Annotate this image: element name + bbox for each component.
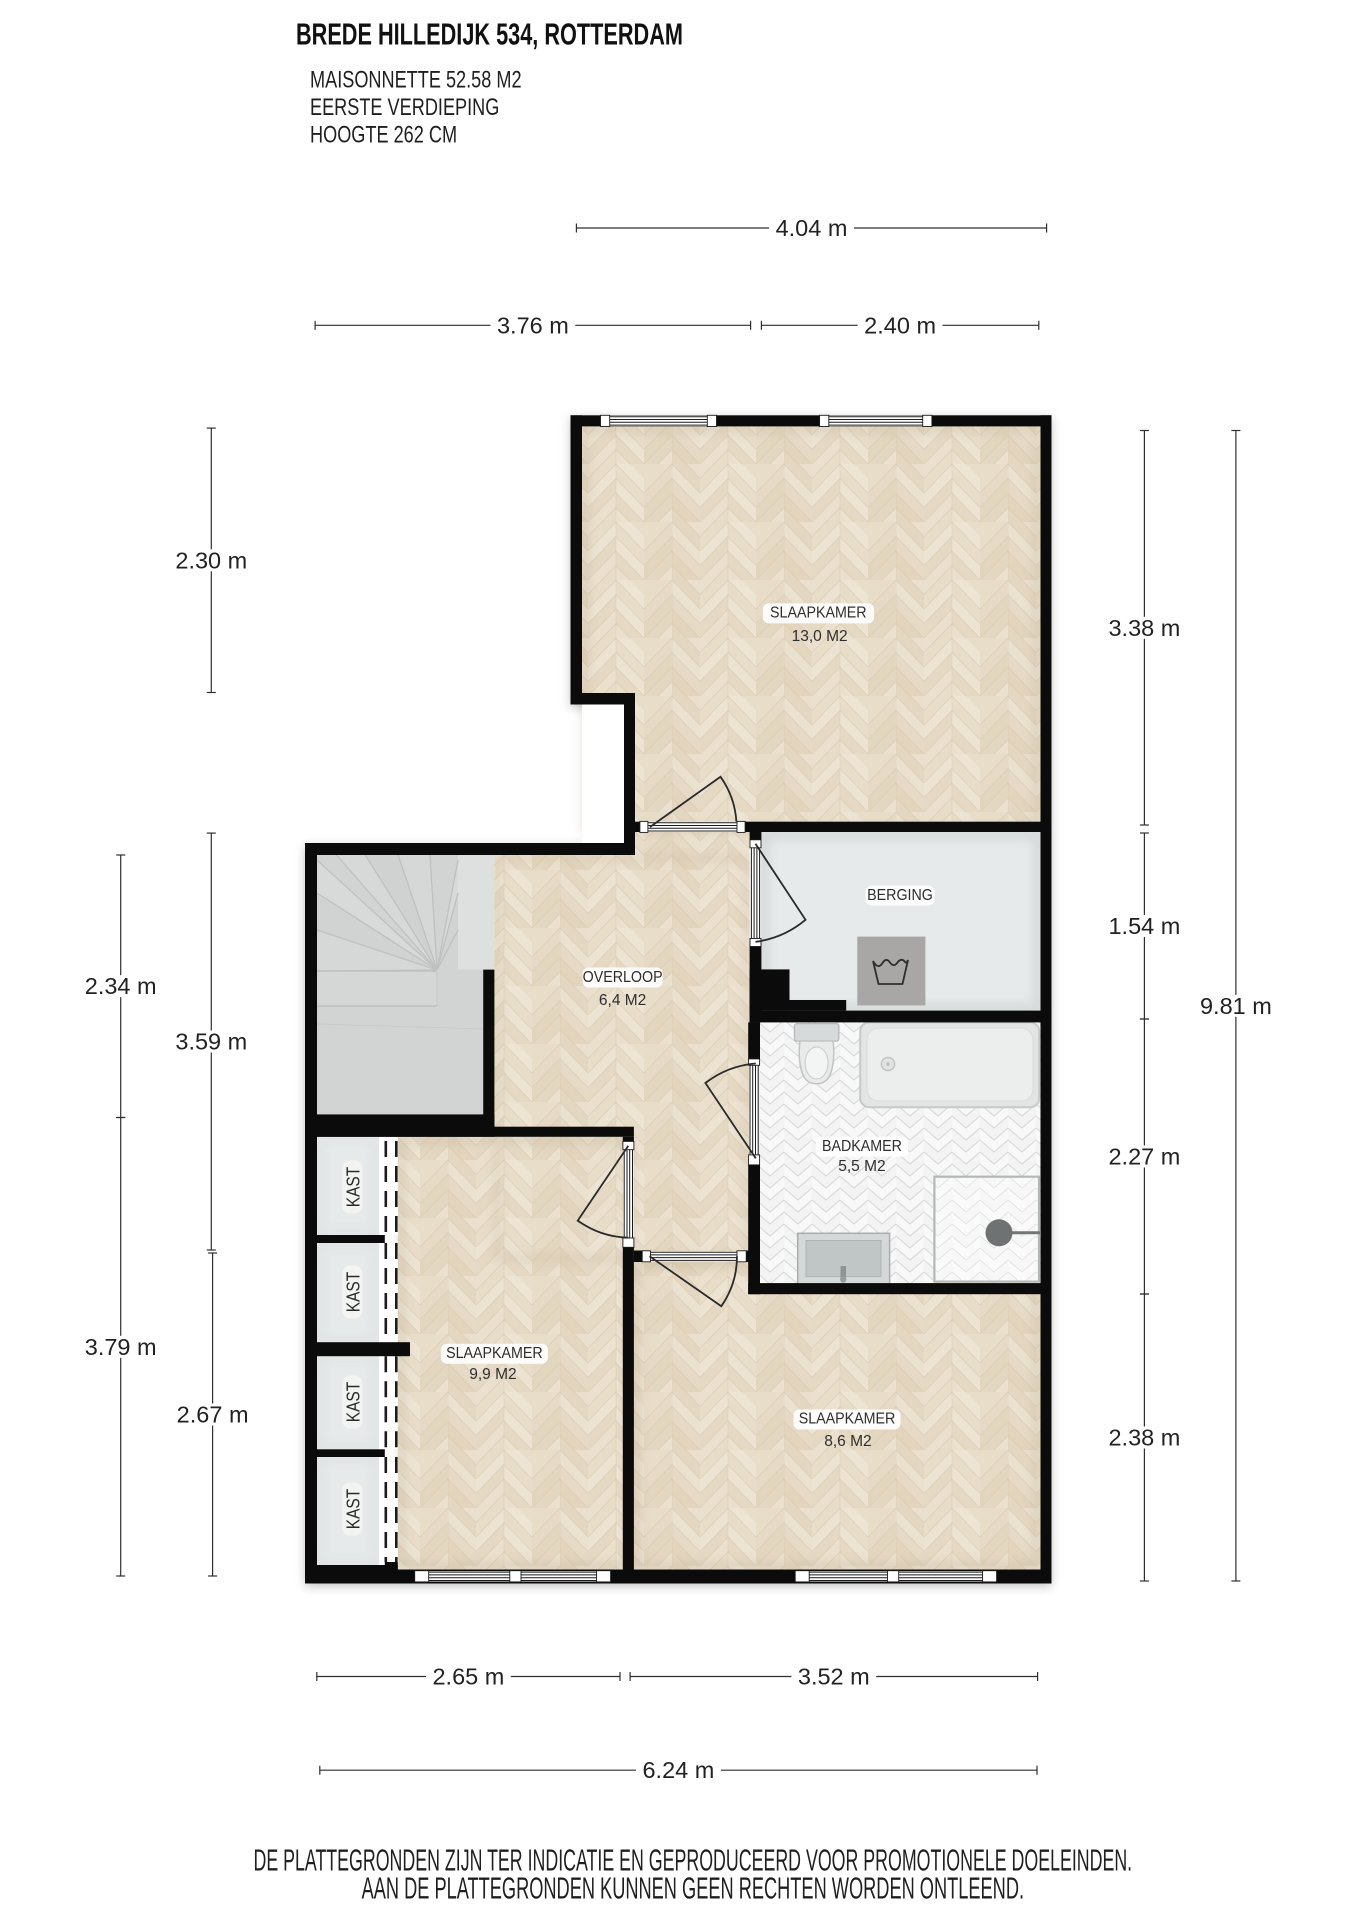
- svg-text:SLAAPKAMER: SLAAPKAMER: [446, 1345, 543, 1362]
- svg-text:2.30 m: 2.30 m: [175, 547, 247, 573]
- svg-text:BADKAMER: BADKAMER: [822, 1138, 902, 1155]
- svg-text:3.79 m: 3.79 m: [85, 1334, 157, 1360]
- svg-text:2.65 m: 2.65 m: [432, 1664, 504, 1690]
- svg-text:2.34 m: 2.34 m: [85, 973, 157, 999]
- svg-text:KAST: KAST: [342, 1488, 364, 1529]
- svg-text:3.52 m: 3.52 m: [798, 1664, 870, 1690]
- svg-text:13,0 M2: 13,0 M2: [792, 628, 848, 645]
- svg-text:KAST: KAST: [342, 1166, 364, 1207]
- svg-text:2.38 m: 2.38 m: [1108, 1425, 1180, 1451]
- svg-text:OVERLOOP: OVERLOOP: [583, 970, 663, 987]
- svg-text:EERSTE VERDIEPING: EERSTE VERDIEPING: [310, 92, 499, 120]
- svg-text:2.27 m: 2.27 m: [1108, 1144, 1180, 1170]
- svg-text:5,5 M2: 5,5 M2: [838, 1158, 885, 1175]
- svg-text:BERGING: BERGING: [867, 888, 933, 905]
- svg-text:3.59 m: 3.59 m: [175, 1029, 247, 1055]
- svg-text:4.04 m: 4.04 m: [776, 215, 848, 241]
- svg-text:MAISONNETTE 52.58 M2: MAISONNETTE 52.58 M2: [310, 65, 522, 93]
- svg-text:3.38 m: 3.38 m: [1108, 615, 1180, 641]
- svg-text:KAST: KAST: [342, 1271, 364, 1312]
- svg-text:2.67 m: 2.67 m: [177, 1402, 249, 1428]
- svg-text:SLAAPKAMER: SLAAPKAMER: [770, 605, 867, 622]
- svg-text:AAN DE PLATTEGRONDEN KUNNEN GE: AAN DE PLATTEGRONDEN KUNNEN GEEN RECHTEN…: [362, 1872, 1024, 1906]
- svg-text:9.81 m: 9.81 m: [1200, 993, 1272, 1019]
- svg-text:6,4 M2: 6,4 M2: [599, 992, 646, 1009]
- svg-text:HOOGTE 262 CM: HOOGTE 262 CM: [310, 120, 457, 148]
- svg-text:BREDE HILLEDIJK 534, ROTTERDAM: BREDE HILLEDIJK 534, ROTTERDAM: [296, 17, 683, 52]
- svg-text:KAST: KAST: [342, 1381, 364, 1422]
- svg-text:8,6 M2: 8,6 M2: [824, 1433, 871, 1450]
- svg-text:9,9 M2: 9,9 M2: [469, 1366, 516, 1383]
- svg-text:SLAAPKAMER: SLAAPKAMER: [799, 1411, 896, 1428]
- svg-text:3.76 m: 3.76 m: [497, 312, 569, 338]
- svg-text:1.54 m: 1.54 m: [1108, 913, 1180, 939]
- svg-text:6.24 m: 6.24 m: [642, 1757, 714, 1783]
- svg-text:2.40 m: 2.40 m: [864, 312, 936, 338]
